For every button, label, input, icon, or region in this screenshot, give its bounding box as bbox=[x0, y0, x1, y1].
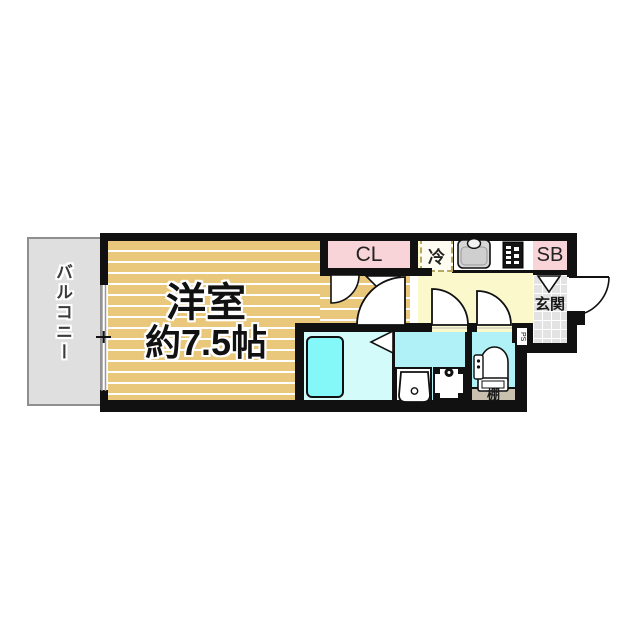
entrance-label: 玄関 bbox=[533, 294, 567, 312]
shelf-label: 棚 bbox=[472, 386, 515, 400]
wall-toilet-right bbox=[515, 343, 527, 412]
wall-wet-area-top-left bbox=[295, 323, 432, 332]
pipe-space-label: PS bbox=[516, 327, 528, 346]
wall-washroom-toilet bbox=[465, 332, 472, 400]
main-room-floor-extension bbox=[320, 276, 410, 323]
wall-bottom bbox=[100, 400, 527, 412]
wall-kitchen-left bbox=[410, 233, 418, 276]
main-room-size: 約7.5帖 bbox=[108, 323, 304, 363]
wall-right-top bbox=[567, 233, 577, 277]
refrigerator-label: 冷 bbox=[420, 238, 453, 272]
wall-top bbox=[100, 233, 577, 241]
wall-bathroom-washroom bbox=[392, 332, 395, 400]
entrance-door-arc bbox=[569, 277, 609, 315]
closet-label: CL bbox=[328, 241, 410, 268]
balcony-label: バルコニー bbox=[50, 263, 75, 363]
floor-plan: バルコニー 洋室 約7.5帖 CL 冷 SB 玄関 PS 棚 bbox=[0, 0, 640, 640]
wall-wet-area-top-mid bbox=[467, 323, 477, 332]
kitchen-counter bbox=[452, 241, 535, 273]
bathtub bbox=[306, 336, 344, 398]
shoe-box-label: SB bbox=[533, 241, 567, 270]
wall-left-top bbox=[100, 233, 108, 285]
main-room-name: 洋室 bbox=[108, 283, 304, 323]
washing-machine-pan bbox=[433, 367, 465, 400]
main-room-label: 洋室 約7.5帖 bbox=[108, 283, 304, 363]
